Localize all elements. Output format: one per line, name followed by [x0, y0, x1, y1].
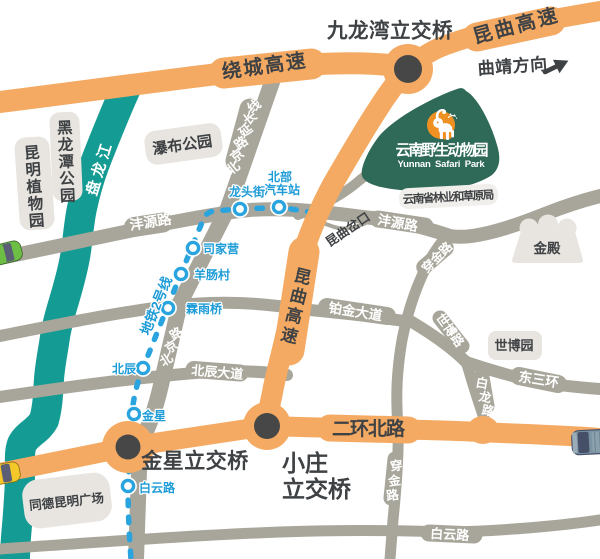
svg-text:白云路: 白云路	[139, 480, 176, 495]
svg-text:明: 明	[25, 161, 42, 180]
svg-text:潭: 潭	[58, 153, 75, 172]
svg-text:植: 植	[25, 176, 43, 196]
svg-text:Yunnan Safari Park: Yunnan Safari Park	[398, 159, 486, 170]
svg-text:九龙湾立交桥: 九龙湾立交桥	[326, 19, 453, 43]
svg-text:园: 园	[28, 211, 45, 230]
svg-text:穿: 穿	[389, 457, 403, 474]
svg-text:二环北路: 二环北路	[332, 417, 406, 440]
svg-text:汽车站: 汽车站	[264, 182, 300, 197]
svg-text:园: 园	[60, 187, 76, 206]
svg-text:物: 物	[27, 193, 44, 213]
svg-text:北部: 北部	[268, 169, 292, 184]
svg-text:金星立交桥: 金星立交桥	[140, 449, 249, 473]
svg-text:龙: 龙	[56, 135, 74, 155]
svg-text:云南野生动物园: 云南野生动物园	[395, 141, 488, 159]
svg-text:公: 公	[59, 170, 76, 189]
svg-text:立交桥: 立交桥	[282, 476, 352, 502]
svg-text:黑: 黑	[57, 119, 74, 138]
svg-text:金: 金	[386, 472, 402, 489]
svg-text:路: 路	[385, 487, 400, 504]
svg-text:金殿: 金殿	[533, 240, 562, 256]
svg-text:羊肠村: 羊肠村	[194, 267, 230, 282]
svg-text:小庄: 小庄	[282, 450, 328, 476]
svg-text:世博园: 世博园	[494, 338, 533, 353]
svg-text:司家营: 司家营	[203, 241, 239, 256]
svg-text:昆: 昆	[24, 144, 41, 163]
svg-text:白云路: 白云路	[430, 526, 471, 543]
svg-text:霖雨桥: 霖雨桥	[186, 301, 223, 316]
svg-text:北辰: 北辰	[112, 361, 136, 376]
svg-text:金星: 金星	[141, 408, 166, 423]
svg-text:龙头街: 龙头街	[229, 184, 265, 199]
